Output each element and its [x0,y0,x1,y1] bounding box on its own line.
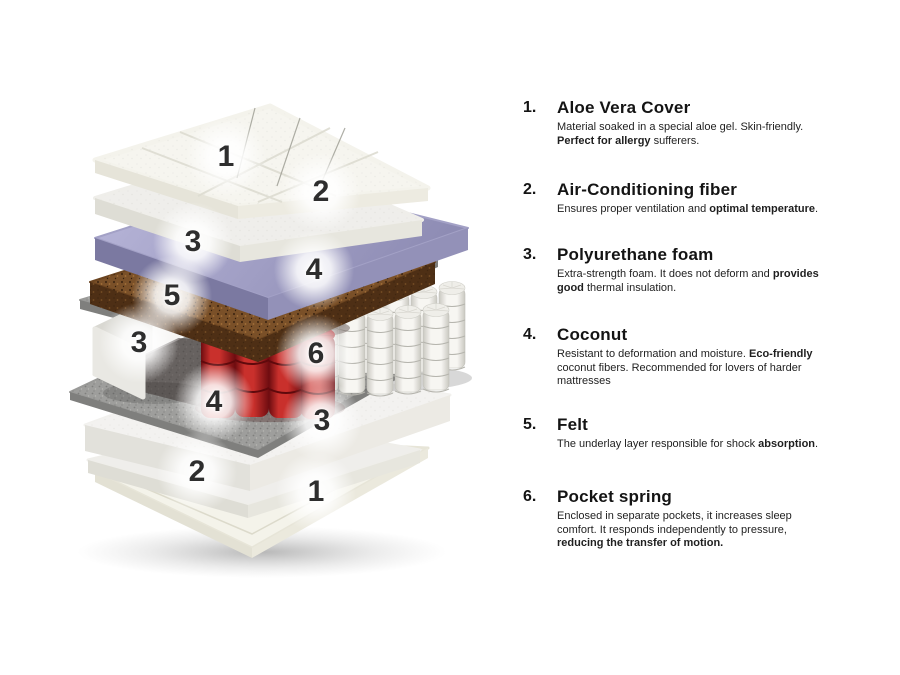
mattress-diagram: 12345364321 [0,0,500,620]
legend-number: 5. [523,415,545,452]
layer-title: Air-Conditioning fiber [557,180,829,199]
legend-text: Air-Conditioning fiber Ensures proper ve… [557,180,829,217]
legend-text: Polyurethane foam Extra-strength foam. I… [557,245,829,295]
legend-text: Coconut Resistant to deformation and moi… [557,325,829,389]
legend-body-text: The underlay layer responsible for shock [557,438,758,450]
legend-body-bold: Eco-friendly [749,348,813,360]
legend-item: 4. Coconut Resistant to deformation and … [515,325,829,389]
legend-body-text: Enclosed in separate pockets, it increas… [557,510,792,536]
legend-body-text: Ensures proper ventilation and [557,203,709,215]
legend-body-text: . [815,438,818,450]
layer-description: Extra-strength foam. It does not deform … [557,268,829,295]
layer-title: Coconut [557,325,829,344]
legend-body-text: . [815,203,818,215]
layer-title: Pocket spring [557,487,829,506]
layer-description: Ensures proper ventilation and optimal t… [557,203,829,217]
mattress-infographic: 12345364321 1. Aloe Vera Cover Material … [0,0,900,675]
legend-number: 2. [523,180,545,217]
legend: 1. Aloe Vera Cover Material soaked in a … [515,0,865,675]
legend-body-text: coconut fibers. Recommended for lovers o… [557,362,802,388]
legend-number: 1. [523,98,545,148]
legend-item: 6. Pocket spring Enclosed in separate po… [515,487,829,551]
legend-body-text: sufferers. [651,135,700,147]
legend-text: Felt The underlay layer responsible for … [557,415,829,452]
legend-body-text: Material soaked in a special aloe gel. S… [557,121,803,133]
legend-item: 3. Polyurethane foam Extra-strength foam… [515,245,829,295]
legend-item: 1. Aloe Vera Cover Material soaked in a … [515,98,829,148]
legend-body-text: Extra-strength foam. It does not deform … [557,268,773,280]
layer-description: Resistant to deformation and moisture. E… [557,348,829,389]
legend-item: 5. Felt The underlay layer responsible f… [515,415,829,452]
legend-body-text: Resistant to deformation and moisture. [557,348,749,360]
layer-title: Polyurethane foam [557,245,829,264]
layer-description: Enclosed in separate pockets, it increas… [557,510,829,551]
mattress-diagram-graphic [0,0,500,620]
legend-body-text: thermal insulation. [584,282,676,294]
legend-body-bold: Perfect for allergy [557,135,651,147]
legend-body-bold: optimal temperature [709,203,815,215]
legend-item: 2. Air-Conditioning fiber Ensures proper… [515,180,829,217]
layer-title: Aloe Vera Cover [557,98,829,117]
layer-description: The underlay layer responsible for shock… [557,438,829,452]
legend-number: 6. [523,487,545,551]
legend-number: 3. [523,245,545,295]
legend-body-bold: absorption [758,438,815,450]
layer-description: Material soaked in a special aloe gel. S… [557,121,829,148]
legend-number: 4. [523,325,545,389]
legend-text: Aloe Vera Cover Material soaked in a spe… [557,98,829,148]
layer-title: Felt [557,415,829,434]
legend-text: Pocket spring Enclosed in separate pocke… [557,487,829,551]
legend-body-bold: reducing the transfer of motion. [557,537,723,549]
